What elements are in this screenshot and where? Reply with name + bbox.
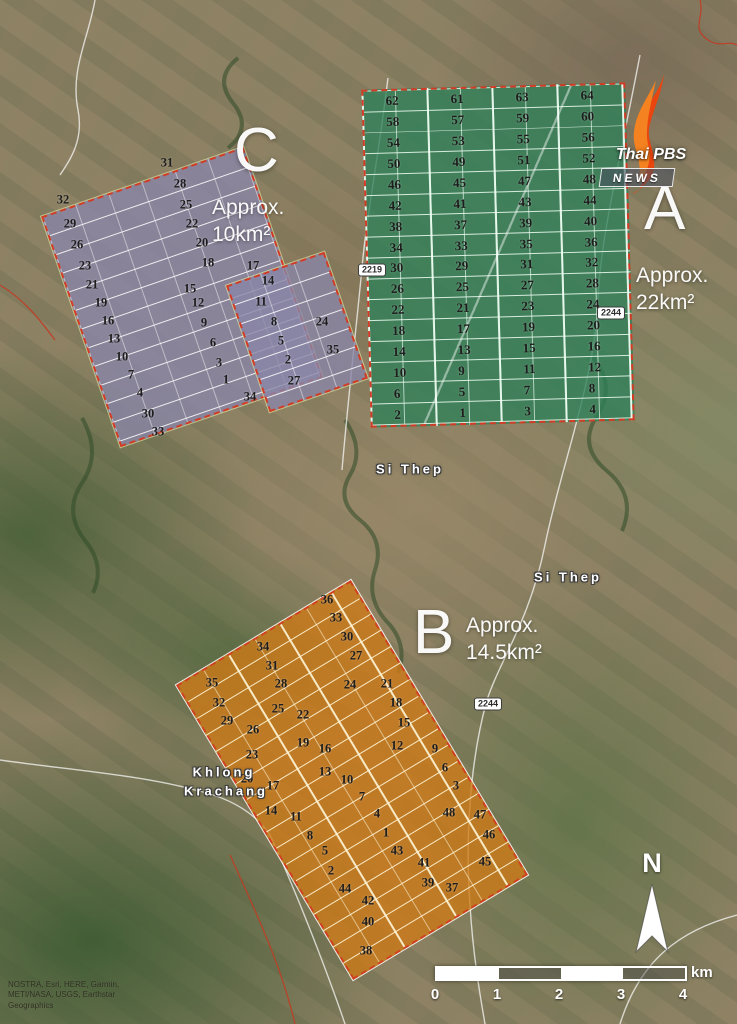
scalebar-tick: 4 xyxy=(679,986,687,1003)
north-label: N xyxy=(642,848,662,879)
map-attribution: NOSTRA, Esri, HERE, Garmin,METI/NASA, US… xyxy=(8,980,119,1011)
zone-a-cell-number: 10 xyxy=(371,361,437,384)
zone-a-cell-number: 24 xyxy=(564,293,630,316)
zone-a-cell-number: 62 xyxy=(363,90,429,113)
zone-a-cell-number: 21 xyxy=(434,297,500,320)
north-indicator: N xyxy=(622,848,682,963)
zone-a-cell-number: 27 xyxy=(499,274,565,297)
zone-a-cell-number: 40 xyxy=(562,210,628,233)
zone-a-cell-number: 55 xyxy=(495,128,561,151)
zone-a-cell-number: 29 xyxy=(433,255,499,278)
zone-a-cell-number: 57 xyxy=(429,109,495,132)
zone-a-cell-number: 54 xyxy=(365,132,431,155)
scalebar-segment xyxy=(561,968,623,979)
zone-a-cell-number: 2 xyxy=(372,403,438,426)
zone-a-cell-number: 35 xyxy=(497,232,563,255)
scalebar-tick: 2 xyxy=(555,986,563,1003)
zone-a-cell-number: 3 xyxy=(502,399,568,422)
attribution-line: NOSTRA, Esri, HERE, Garmin, xyxy=(8,980,119,990)
scalebar-tick: 1 xyxy=(493,986,501,1003)
zone-a-cell-number: 28 xyxy=(564,272,630,295)
zone-a-cell-number: 33 xyxy=(432,234,498,257)
zone-a-cell-number: 36 xyxy=(562,231,628,254)
zone-a-cell-number: 61 xyxy=(428,88,494,111)
zone-a-cell-number: 38 xyxy=(367,215,433,238)
scalebar-bar xyxy=(435,966,687,981)
zone-a-cell-number: 49 xyxy=(430,151,496,174)
zone-a-cell-number: 7 xyxy=(501,378,567,401)
zone-a-cell-number: 53 xyxy=(430,130,496,153)
zone-a-cell-number: 63 xyxy=(493,86,559,109)
zone-a-cell-number: 32 xyxy=(563,251,629,274)
zone-a-cell-number: 59 xyxy=(494,107,560,130)
zone-a-cell-number: 19 xyxy=(500,316,566,339)
zone-a-cell-number: 20 xyxy=(565,314,631,337)
zone-a-cell-number: 30 xyxy=(368,257,434,280)
satellite-map: 6261636458575960545355565049515246454748… xyxy=(0,0,737,1024)
zone-a-cell-number: 25 xyxy=(434,276,500,299)
zone-a-cell-number: 43 xyxy=(496,191,562,214)
zone-a-cell-number: 13 xyxy=(435,338,501,361)
scalebar-unit: km xyxy=(691,964,713,981)
attribution-line: Geographics xyxy=(8,1001,119,1011)
zone-a-cell-number: 22 xyxy=(369,299,435,322)
zone-a-cell-number: 45 xyxy=(431,172,497,195)
zone-a-cell-number: 58 xyxy=(364,111,430,134)
zone-a-cell-number: 9 xyxy=(436,359,502,382)
zone-a-cell-number: 41 xyxy=(431,192,497,215)
zone-a-cell-number: 39 xyxy=(497,211,563,234)
zone-a-cell-number: 34 xyxy=(367,236,433,259)
scalebar-segment xyxy=(623,968,685,979)
zone-a-cell-number: 8 xyxy=(566,377,632,400)
zone-a-cell-number: 5 xyxy=(437,380,503,403)
scalebar: 01234 km xyxy=(435,964,735,1010)
scalebar-segment xyxy=(499,968,561,979)
zone-a-cell-number: 42 xyxy=(366,194,432,217)
zone-a-cell-number: 1 xyxy=(437,401,503,424)
zone-a-cell-number: 18 xyxy=(370,319,436,342)
zone-a-cell-number: 15 xyxy=(500,337,566,360)
zone-a-cell-number: 23 xyxy=(499,295,565,318)
zone-a-cell-number: 31 xyxy=(498,253,564,276)
scalebar-segment xyxy=(437,968,499,979)
zone-a-cell-number: 37 xyxy=(432,213,498,236)
zone-a-cell-number: 26 xyxy=(369,278,435,301)
zone-a-cell-number: 6 xyxy=(372,382,438,405)
zone-a-cell-number: 47 xyxy=(496,170,562,193)
scalebar-tick: 3 xyxy=(617,986,625,1003)
zone-a-cell-number: 4 xyxy=(567,397,633,420)
zone-a-cell-number: 51 xyxy=(495,149,561,172)
attribution-line: METI/NASA, USGS, Earthstar xyxy=(8,990,119,1000)
north-arrow-icon xyxy=(632,884,672,956)
thaipbs-news-badge: NEWS xyxy=(599,168,676,187)
zone-a-cell-number: 11 xyxy=(501,358,567,381)
scalebar-tick: 0 xyxy=(431,986,439,1003)
thaipbs-logo: Thai PBS NEWS xyxy=(588,74,718,194)
zone-a-cell-number: 14 xyxy=(370,340,436,363)
zone-a-cell-number: 16 xyxy=(565,335,631,358)
zone-a-cell-number: 17 xyxy=(435,318,501,341)
zone-a-cell-number: 12 xyxy=(566,356,632,379)
zone-a-cell-number: 46 xyxy=(366,173,432,196)
thaipbs-brand-text: Thai PBS xyxy=(596,146,706,164)
zone-a-cell-number: 50 xyxy=(365,152,431,175)
